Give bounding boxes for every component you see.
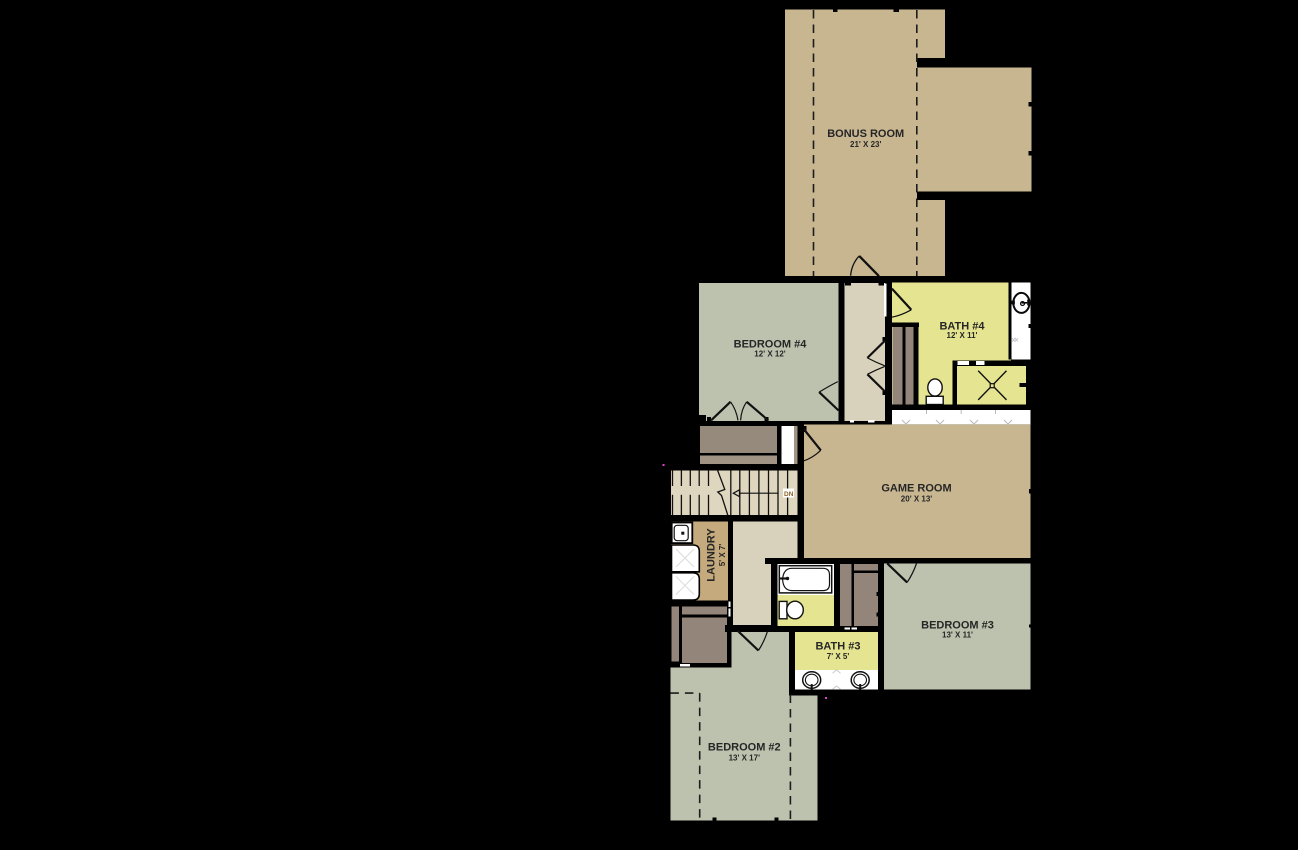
svg-text:20' X 13': 20' X 13' bbox=[901, 495, 932, 504]
svg-text:12' X 11': 12' X 11' bbox=[947, 331, 978, 340]
svg-text:BEDROOM #4: BEDROOM #4 bbox=[734, 338, 808, 350]
svg-text:BATH #3: BATH #3 bbox=[815, 641, 860, 653]
svg-text:7' X 5': 7' X 5' bbox=[827, 652, 850, 661]
svg-text:5' X 7': 5' X 7' bbox=[718, 544, 727, 567]
svg-text:21' X 23': 21' X 23' bbox=[850, 140, 881, 149]
svg-text:13' X 17': 13' X 17' bbox=[729, 754, 760, 763]
svg-text:13' X 11': 13' X 11' bbox=[942, 631, 973, 640]
svg-text:DN: DN bbox=[784, 491, 794, 498]
svg-text:LAUNDRY: LAUNDRY bbox=[705, 528, 717, 582]
svg-text:BEDROOM #2: BEDROOM #2 bbox=[708, 742, 781, 754]
svg-text:GAME ROOM: GAME ROOM bbox=[881, 483, 951, 495]
svg-text:12' X 12': 12' X 12' bbox=[754, 350, 785, 359]
svg-text:BONUS ROOM: BONUS ROOM bbox=[827, 128, 904, 140]
